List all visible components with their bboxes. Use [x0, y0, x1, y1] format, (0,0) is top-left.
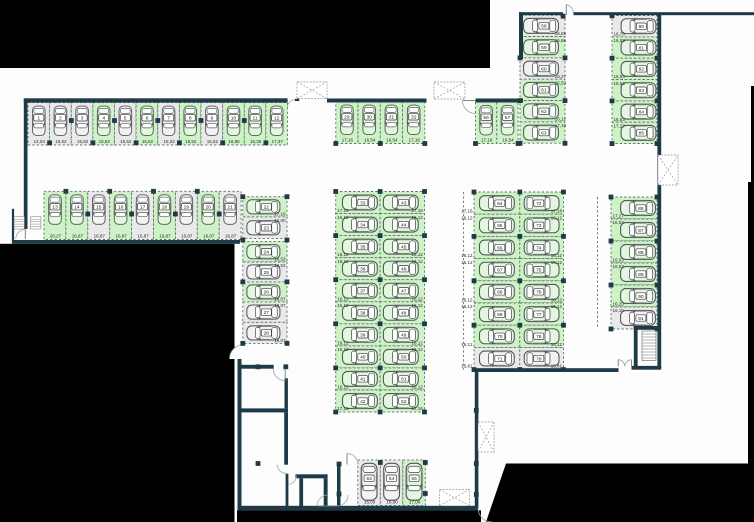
svg-text:19: 19 [184, 205, 190, 211]
svg-text:16,12: 16,12 [551, 260, 563, 265]
svg-text:17,18: 17,18 [274, 211, 286, 216]
svg-text:40: 40 [360, 355, 366, 361]
svg-text:1: 1 [37, 116, 40, 122]
svg-text:13: 13 [52, 205, 58, 211]
svg-text:34: 34 [360, 222, 366, 228]
svg-text:16,53: 16,53 [614, 117, 626, 122]
svg-text:20,27: 20,27 [50, 234, 62, 239]
svg-text:5: 5 [124, 116, 127, 122]
svg-text:17,16: 17,16 [337, 406, 349, 411]
svg-text:16,12: 16,12 [551, 298, 563, 303]
svg-text:16,12: 16,12 [461, 304, 473, 309]
svg-text:68: 68 [497, 290, 503, 296]
svg-text:35: 35 [360, 244, 366, 250]
svg-text:16,12: 16,12 [337, 303, 349, 308]
svg-text:16,00: 16,00 [274, 218, 286, 223]
svg-text:29: 29 [344, 115, 350, 121]
svg-text:17,18: 17,18 [551, 209, 563, 214]
svg-text:16,86: 16,86 [228, 139, 240, 144]
svg-text:31: 31 [389, 115, 395, 121]
svg-text:77: 77 [536, 312, 542, 318]
svg-text:85: 85 [639, 131, 645, 137]
svg-text:66: 66 [497, 245, 503, 251]
svg-text:17,16: 17,16 [412, 406, 424, 411]
svg-text:16,87: 16,87 [115, 234, 127, 239]
svg-text:91: 91 [638, 316, 644, 322]
svg-text:16,12: 16,12 [551, 342, 563, 347]
svg-text:8: 8 [189, 116, 192, 122]
svg-text:60: 60 [541, 66, 547, 72]
svg-text:39: 39 [360, 333, 366, 339]
svg-text:76: 76 [536, 290, 542, 296]
svg-text:15: 15 [96, 205, 102, 211]
svg-text:17,27: 17,27 [613, 214, 625, 219]
svg-text:16,12: 16,12 [412, 340, 424, 345]
svg-text:33: 33 [360, 200, 366, 206]
svg-text:16,54: 16,54 [502, 138, 514, 143]
svg-text:25: 25 [264, 270, 270, 276]
svg-text:80: 80 [639, 24, 645, 30]
svg-text:11: 11 [253, 116, 258, 122]
svg-text:16,00: 16,00 [386, 500, 398, 505]
svg-text:16,12: 16,12 [412, 252, 424, 257]
svg-text:84: 84 [639, 109, 645, 115]
svg-text:16,12: 16,12 [461, 253, 473, 258]
svg-text:46: 46 [401, 267, 407, 273]
svg-text:16,53: 16,53 [614, 38, 626, 43]
svg-text:16,53: 16,53 [613, 264, 625, 269]
svg-text:9: 9 [211, 116, 214, 122]
svg-text:83: 83 [639, 88, 645, 94]
svg-text:7: 7 [167, 116, 170, 122]
svg-text:16,07: 16,07 [274, 296, 286, 301]
svg-text:16,53: 16,53 [274, 257, 286, 262]
svg-text:69: 69 [497, 312, 503, 318]
svg-text:17: 17 [140, 205, 146, 211]
svg-text:48: 48 [401, 311, 407, 317]
svg-text:15,52: 15,52 [163, 139, 175, 144]
svg-text:16,12: 16,12 [555, 116, 567, 121]
svg-text:82: 82 [639, 67, 645, 73]
svg-text:81: 81 [639, 45, 645, 51]
svg-text:16,12: 16,12 [337, 347, 349, 352]
svg-text:63: 63 [541, 130, 547, 136]
svg-text:52: 52 [401, 399, 407, 405]
svg-text:16,07: 16,07 [274, 303, 286, 308]
svg-text:18: 18 [162, 205, 168, 211]
svg-text:88: 88 [638, 250, 644, 256]
svg-text:15,81: 15,81 [461, 364, 473, 369]
svg-text:17,16: 17,16 [342, 138, 354, 143]
svg-text:17,37: 17,37 [272, 139, 284, 144]
svg-text:16,87: 16,87 [203, 234, 215, 239]
svg-text:79: 79 [536, 356, 542, 362]
svg-text:89: 89 [638, 272, 644, 278]
svg-text:86: 86 [638, 206, 644, 212]
svg-text:16,54: 16,54 [364, 138, 376, 143]
svg-text:15,52: 15,52 [120, 139, 132, 144]
svg-text:65: 65 [497, 223, 503, 229]
svg-text:6: 6 [146, 116, 149, 122]
svg-text:16,12: 16,12 [461, 342, 473, 347]
svg-text:16,54: 16,54 [386, 138, 398, 143]
svg-text:16,12: 16,12 [412, 215, 424, 220]
svg-text:15,52: 15,52 [55, 139, 67, 144]
svg-text:67: 67 [497, 268, 503, 274]
svg-text:16,12: 16,12 [551, 215, 563, 220]
svg-text:17,16: 17,16 [461, 209, 473, 214]
svg-text:16,87: 16,87 [72, 234, 84, 239]
svg-text:15,52: 15,52 [77, 139, 89, 144]
svg-text:16,27: 16,27 [555, 74, 567, 79]
svg-text:61: 61 [541, 88, 547, 94]
svg-text:16,12: 16,12 [337, 296, 349, 301]
svg-text:32: 32 [411, 115, 417, 121]
svg-text:49: 49 [401, 333, 407, 339]
svg-text:12: 12 [274, 116, 280, 122]
svg-text:53: 53 [366, 476, 372, 482]
svg-text:16,53: 16,53 [614, 81, 626, 86]
svg-text:16,35: 16,35 [250, 139, 262, 144]
svg-text:71: 71 [497, 356, 503, 362]
svg-text:44: 44 [401, 222, 407, 228]
svg-text:50: 50 [401, 355, 407, 361]
svg-text:16,87: 16,87 [94, 234, 106, 239]
svg-text:16,53: 16,53 [613, 220, 625, 225]
svg-text:16,75: 16,75 [614, 31, 626, 36]
svg-text:73: 73 [536, 223, 542, 229]
svg-text:3: 3 [81, 116, 84, 122]
svg-text:72: 72 [536, 201, 542, 207]
svg-text:90: 90 [638, 294, 644, 300]
svg-text:17,16: 17,16 [409, 138, 421, 143]
svg-text:16,12: 16,12 [412, 296, 424, 301]
svg-text:16,53: 16,53 [613, 258, 625, 263]
svg-text:45: 45 [401, 244, 407, 250]
svg-text:41: 41 [360, 377, 366, 383]
svg-text:87: 87 [638, 228, 644, 234]
svg-text:16,12: 16,12 [461, 215, 473, 220]
svg-text:16: 16 [118, 205, 124, 211]
svg-text:58: 58 [541, 24, 547, 30]
svg-text:15,52: 15,52 [142, 139, 154, 144]
svg-text:30: 30 [366, 115, 372, 121]
svg-text:14: 14 [74, 205, 80, 211]
svg-text:57: 57 [505, 115, 511, 121]
svg-text:2: 2 [59, 116, 62, 122]
svg-text:17,27: 17,27 [614, 124, 626, 129]
svg-text:26: 26 [264, 290, 270, 296]
svg-text:37: 37 [360, 289, 366, 295]
svg-text:16,53: 16,53 [274, 263, 286, 268]
svg-text:16,12: 16,12 [337, 259, 349, 264]
svg-text:16,12: 16,12 [412, 303, 424, 308]
svg-text:17,19: 17,19 [555, 123, 567, 128]
svg-text:16,65: 16,65 [555, 31, 567, 36]
svg-text:16,20: 16,20 [613, 302, 625, 307]
svg-text:16,87: 16,87 [181, 234, 193, 239]
svg-text:70: 70 [497, 334, 503, 340]
svg-text:15,52: 15,52 [207, 139, 219, 144]
svg-text:21: 21 [227, 205, 233, 211]
svg-text:15,52: 15,52 [185, 139, 197, 144]
svg-text:16,12: 16,12 [461, 260, 473, 265]
svg-text:15,52: 15,52 [99, 139, 111, 144]
svg-text:16,15: 16,15 [613, 308, 625, 313]
svg-text:16,12: 16,12 [551, 253, 563, 258]
svg-text:28: 28 [264, 331, 270, 337]
svg-text:20: 20 [205, 205, 211, 211]
svg-text:16,12: 16,12 [412, 259, 424, 264]
svg-text:16,12: 16,12 [412, 347, 424, 352]
svg-text:43: 43 [401, 200, 407, 206]
svg-text:16,53: 16,53 [614, 74, 626, 79]
svg-text:23: 23 [264, 226, 270, 232]
svg-text:16,87: 16,87 [225, 234, 237, 239]
svg-text:27: 27 [264, 310, 270, 316]
svg-text:16,12: 16,12 [461, 298, 473, 303]
svg-text:51: 51 [401, 377, 407, 383]
svg-text:56: 56 [483, 115, 489, 121]
svg-text:42: 42 [360, 399, 366, 405]
svg-text:17,18: 17,18 [412, 208, 424, 213]
svg-text:22: 22 [264, 205, 270, 211]
svg-text:55: 55 [411, 476, 417, 482]
svg-text:17,16: 17,16 [337, 208, 349, 213]
svg-text:36: 36 [360, 267, 366, 273]
svg-text:14,04: 14,04 [34, 139, 46, 144]
svg-text:75: 75 [536, 268, 542, 274]
svg-text:16,00: 16,00 [364, 500, 376, 505]
svg-text:16,87: 16,87 [159, 234, 171, 239]
svg-text:16,12: 16,12 [412, 385, 424, 390]
svg-text:54: 54 [389, 476, 395, 482]
svg-text:15,81: 15,81 [551, 364, 563, 369]
svg-text:16,12: 16,12 [337, 340, 349, 345]
svg-text:16,07: 16,07 [274, 338, 286, 343]
svg-text:16,12: 16,12 [337, 385, 349, 390]
svg-text:38: 38 [360, 311, 366, 317]
svg-text:16,12: 16,12 [551, 304, 563, 309]
svg-text:64: 64 [497, 201, 503, 207]
svg-text:47: 47 [401, 289, 407, 295]
svg-text:17,00: 17,00 [409, 500, 421, 505]
svg-text:78: 78 [536, 334, 542, 340]
svg-text:16,53: 16,53 [555, 81, 567, 86]
svg-text:4: 4 [102, 116, 105, 122]
svg-text:16,66: 16,66 [555, 38, 567, 43]
svg-text:16,12: 16,12 [337, 215, 349, 220]
svg-text:17,16: 17,16 [481, 138, 493, 143]
svg-text:59: 59 [541, 45, 547, 51]
svg-text:74: 74 [536, 245, 542, 251]
svg-text:16,12: 16,12 [337, 252, 349, 257]
svg-text:10: 10 [231, 116, 237, 122]
svg-text:62: 62 [541, 109, 547, 115]
svg-text:16,87: 16,87 [137, 234, 149, 239]
svg-text:24: 24 [264, 250, 270, 256]
